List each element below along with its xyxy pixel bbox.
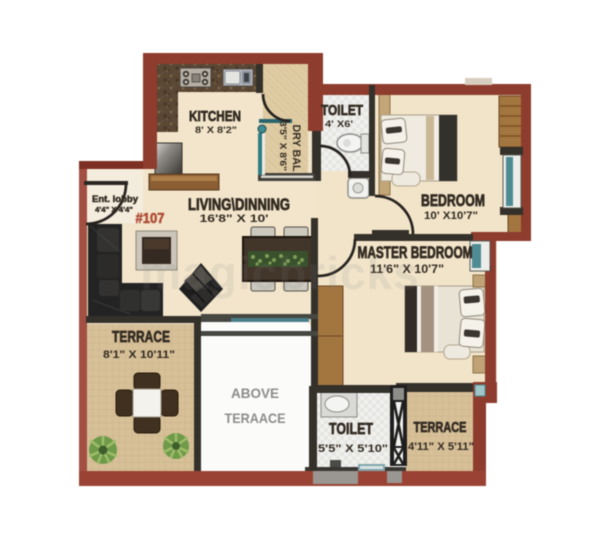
svg-text:4'4" X 4'4": 4'4" X 4'4": [95, 205, 133, 214]
svg-text:8'1" X 10'11": 8'1" X 10'11": [103, 349, 175, 361]
svg-text:KITCHEN: KITCHEN: [189, 108, 241, 125]
svg-text:4'11" X 5'11": 4'11" X 5'11": [408, 441, 474, 453]
svg-text:5'5" X 5'10": 5'5" X 5'10": [318, 443, 388, 455]
svg-text:TERRACE: TERRACE: [112, 329, 170, 346]
svg-text:TOILET: TOILET: [321, 102, 363, 119]
svg-text:Ent. lobby: Ent. lobby: [92, 194, 139, 205]
svg-text:LIVING\DINNING: LIVING\DINNING: [188, 195, 290, 214]
svg-text:TOILET: TOILET: [329, 421, 373, 438]
svg-text:magicbricks: magicbricks: [140, 247, 419, 299]
svg-text:8' X 8'2": 8' X 8'2": [195, 125, 237, 136]
svg-text:16'8" X 10': 16'8" X 10': [200, 213, 269, 225]
svg-text:ABOVE: ABOVE: [231, 385, 279, 401]
svg-text:DRY BAL: DRY BAL: [290, 125, 302, 172]
svg-text:4' X6': 4' X6': [325, 119, 353, 129]
svg-text:TERAACE: TERAACE: [225, 410, 286, 426]
svg-text:#107: #107: [136, 211, 165, 227]
svg-text:BEDROOM: BEDROOM: [421, 191, 485, 210]
svg-text:3'5" X 8'6": 3'5" X 8'6": [278, 121, 288, 171]
svg-text:10' X10'7": 10' X10'7": [424, 210, 478, 222]
svg-text:TERRACE: TERRACE: [414, 419, 467, 436]
